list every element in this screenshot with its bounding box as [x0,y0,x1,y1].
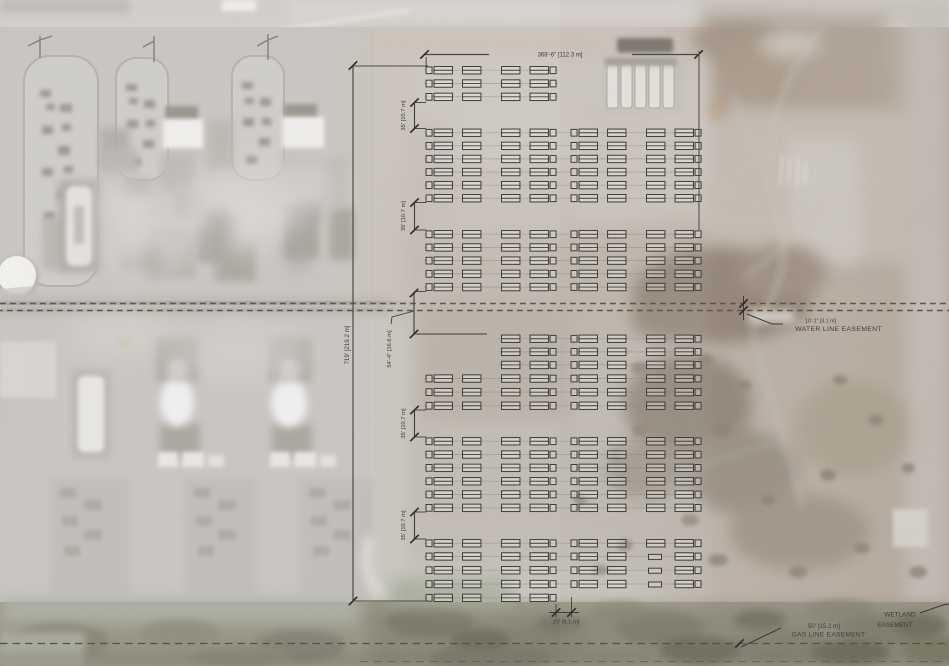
svg-text:35' [10.7 m]: 35' [10.7 m] [401,201,407,231]
svg-text:50' [15.2 m]: 50' [15.2 m] [808,623,840,630]
svg-text:GAS LINE EASEMENT: GAS LINE EASEMENT [792,632,866,639]
svg-text:WETLAND: WETLAND [884,612,916,619]
svg-text:WATER LINE EASEMENT: WATER LINE EASEMENT [795,326,882,333]
svg-text:EASEMENT: EASEMENT [877,622,912,629]
svg-text:35' [10.7 m]: 35' [10.7 m] [401,510,407,540]
svg-text:368'-6" [112.3 m]: 368'-6" [112.3 m] [538,53,583,59]
svg-text:10'-1" [3.1 m]: 10'-1" [3.1 m] [805,319,836,325]
svg-text:35' [10.7 m]: 35' [10.7 m] [401,100,407,130]
svg-text:20' [6.1 m]: 20' [6.1 m] [553,620,580,626]
svg-text:719' [219.2 m]: 719' [219.2 m] [344,325,351,364]
svg-text:54'-4" [16.6 m]: 54'-4" [16.6 m] [387,330,393,368]
svg-text:35' [10.7 m]: 35' [10.7 m] [401,408,407,438]
